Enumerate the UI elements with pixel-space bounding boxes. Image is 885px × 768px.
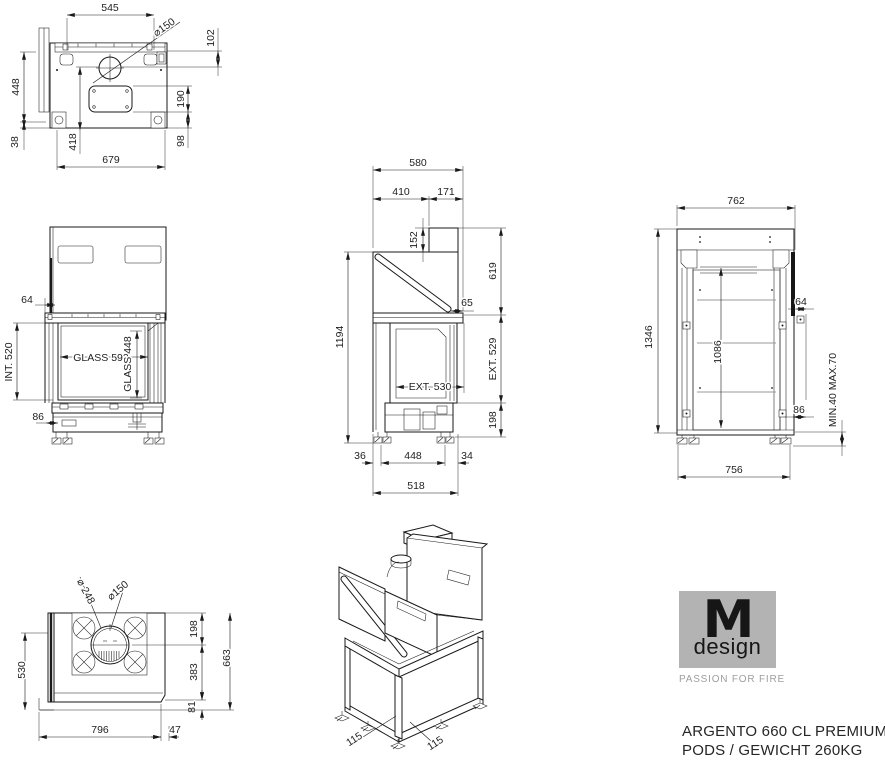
dim-bottom-dia248: ⌀ 248 <box>74 577 97 606</box>
dim-side-448: 448 <box>404 450 422 462</box>
dim-back-1086: 1086 <box>712 340 724 364</box>
isometric-view: 115 115 <box>335 525 487 753</box>
side-feet <box>374 432 454 443</box>
weight-note: PODS / GEWICHT 260KG <box>682 742 885 761</box>
back-view: 762 1346 1086 64 86 MIN.40 MAX.70 756 <box>643 195 846 480</box>
dim-side-152: 152 <box>408 231 420 249</box>
dim-top-98: 98 <box>175 135 187 147</box>
logo-box: M design <box>679 591 776 668</box>
drawing-title-block: ARGENTO 660 CL PREMIUM PODS / GEWICHT 26… <box>682 723 885 760</box>
front-feet <box>52 432 164 444</box>
dim-bottom-198: 198 <box>188 620 200 638</box>
dim-front-glass592: GLASS 592 <box>73 352 129 364</box>
dim-side-1194: 1194 <box>334 326 346 349</box>
technical-drawing-sheet: 545 ⌀150 102 448 38 418 190 98 679 <box>0 0 885 768</box>
dim-back-feet-range: MIN.40 MAX.70 <box>827 353 839 427</box>
dim-side-580: 580 <box>409 157 427 169</box>
dim-bottom-663: 663 <box>221 649 233 667</box>
dim-iso-115-left: 115 <box>344 730 365 749</box>
top-view: 545 ⌀150 102 448 38 418 190 98 679 <box>9 2 222 170</box>
dim-bottom-47: 47 <box>169 724 181 736</box>
front-vent-right <box>125 246 161 263</box>
dim-top-102: 102 <box>205 29 217 47</box>
dim-side-ext529: EXT. 529 <box>487 338 499 381</box>
dim-top-418: 418 <box>67 133 79 151</box>
dim-side-619: 619 <box>487 262 499 280</box>
side-view: 580 410 171 152 65 619 EXT. 529 198 1194… <box>334 157 506 496</box>
dim-side-171: 171 <box>437 186 455 198</box>
dim-top-38: 38 <box>9 136 21 148</box>
dim-top-679: 679 <box>102 154 120 166</box>
dim-side-ext530: EXT. 530 <box>409 381 452 393</box>
dim-back-64: 64 <box>795 296 807 308</box>
model-name: ARGENTO 660 CL PREMIUM <box>682 723 885 742</box>
logo-tagline: PASSION FOR FIRE <box>679 674 776 685</box>
dim-side-410: 410 <box>392 186 410 198</box>
dim-front-64: 64 <box>21 294 33 306</box>
bottom-view: ⌀ 248 ⌀150 198 383 81 663 530 796 47 <box>16 577 234 741</box>
front-vent-left <box>58 246 93 263</box>
dim-front-glass448: GLASS 448 <box>122 336 134 392</box>
dim-top-dia150: ⌀150 <box>151 16 178 40</box>
dim-back-86: 86 <box>793 404 805 416</box>
dim-side-518: 518 <box>407 480 425 492</box>
dim-iso-115-right: 115 <box>425 734 446 753</box>
dim-bottom-530: 530 <box>16 661 28 679</box>
dim-side-198: 198 <box>487 411 499 429</box>
dim-bottom-dia150: ⌀150 <box>105 578 131 603</box>
dim-side-36: 36 <box>354 450 366 462</box>
mdesign-logo: M design PASSION FOR FIRE <box>679 591 776 685</box>
back-feet <box>677 435 791 444</box>
dim-front-int520: INT. 520 <box>3 342 15 381</box>
dim-top-190: 190 <box>175 90 187 108</box>
top-opening <box>89 86 132 112</box>
dim-back-756: 756 <box>725 464 743 476</box>
dim-bottom-796: 796 <box>91 724 109 736</box>
front-view: 64 INT. 520 GLASS 592 GLASS 448 86 <box>3 227 166 444</box>
dim-bottom-383: 383 <box>188 663 200 681</box>
dim-bottom-81: 81 <box>186 701 198 713</box>
dim-back-1346: 1346 <box>643 325 655 349</box>
dim-back-762: 762 <box>727 195 745 207</box>
logo-design: design <box>694 634 762 660</box>
dim-side-65: 65 <box>461 297 473 309</box>
dim-front-86: 86 <box>32 411 44 423</box>
dim-top-448: 448 <box>10 78 22 96</box>
dim-side-34: 34 <box>461 450 473 462</box>
dim-top-545: 545 <box>101 2 119 14</box>
